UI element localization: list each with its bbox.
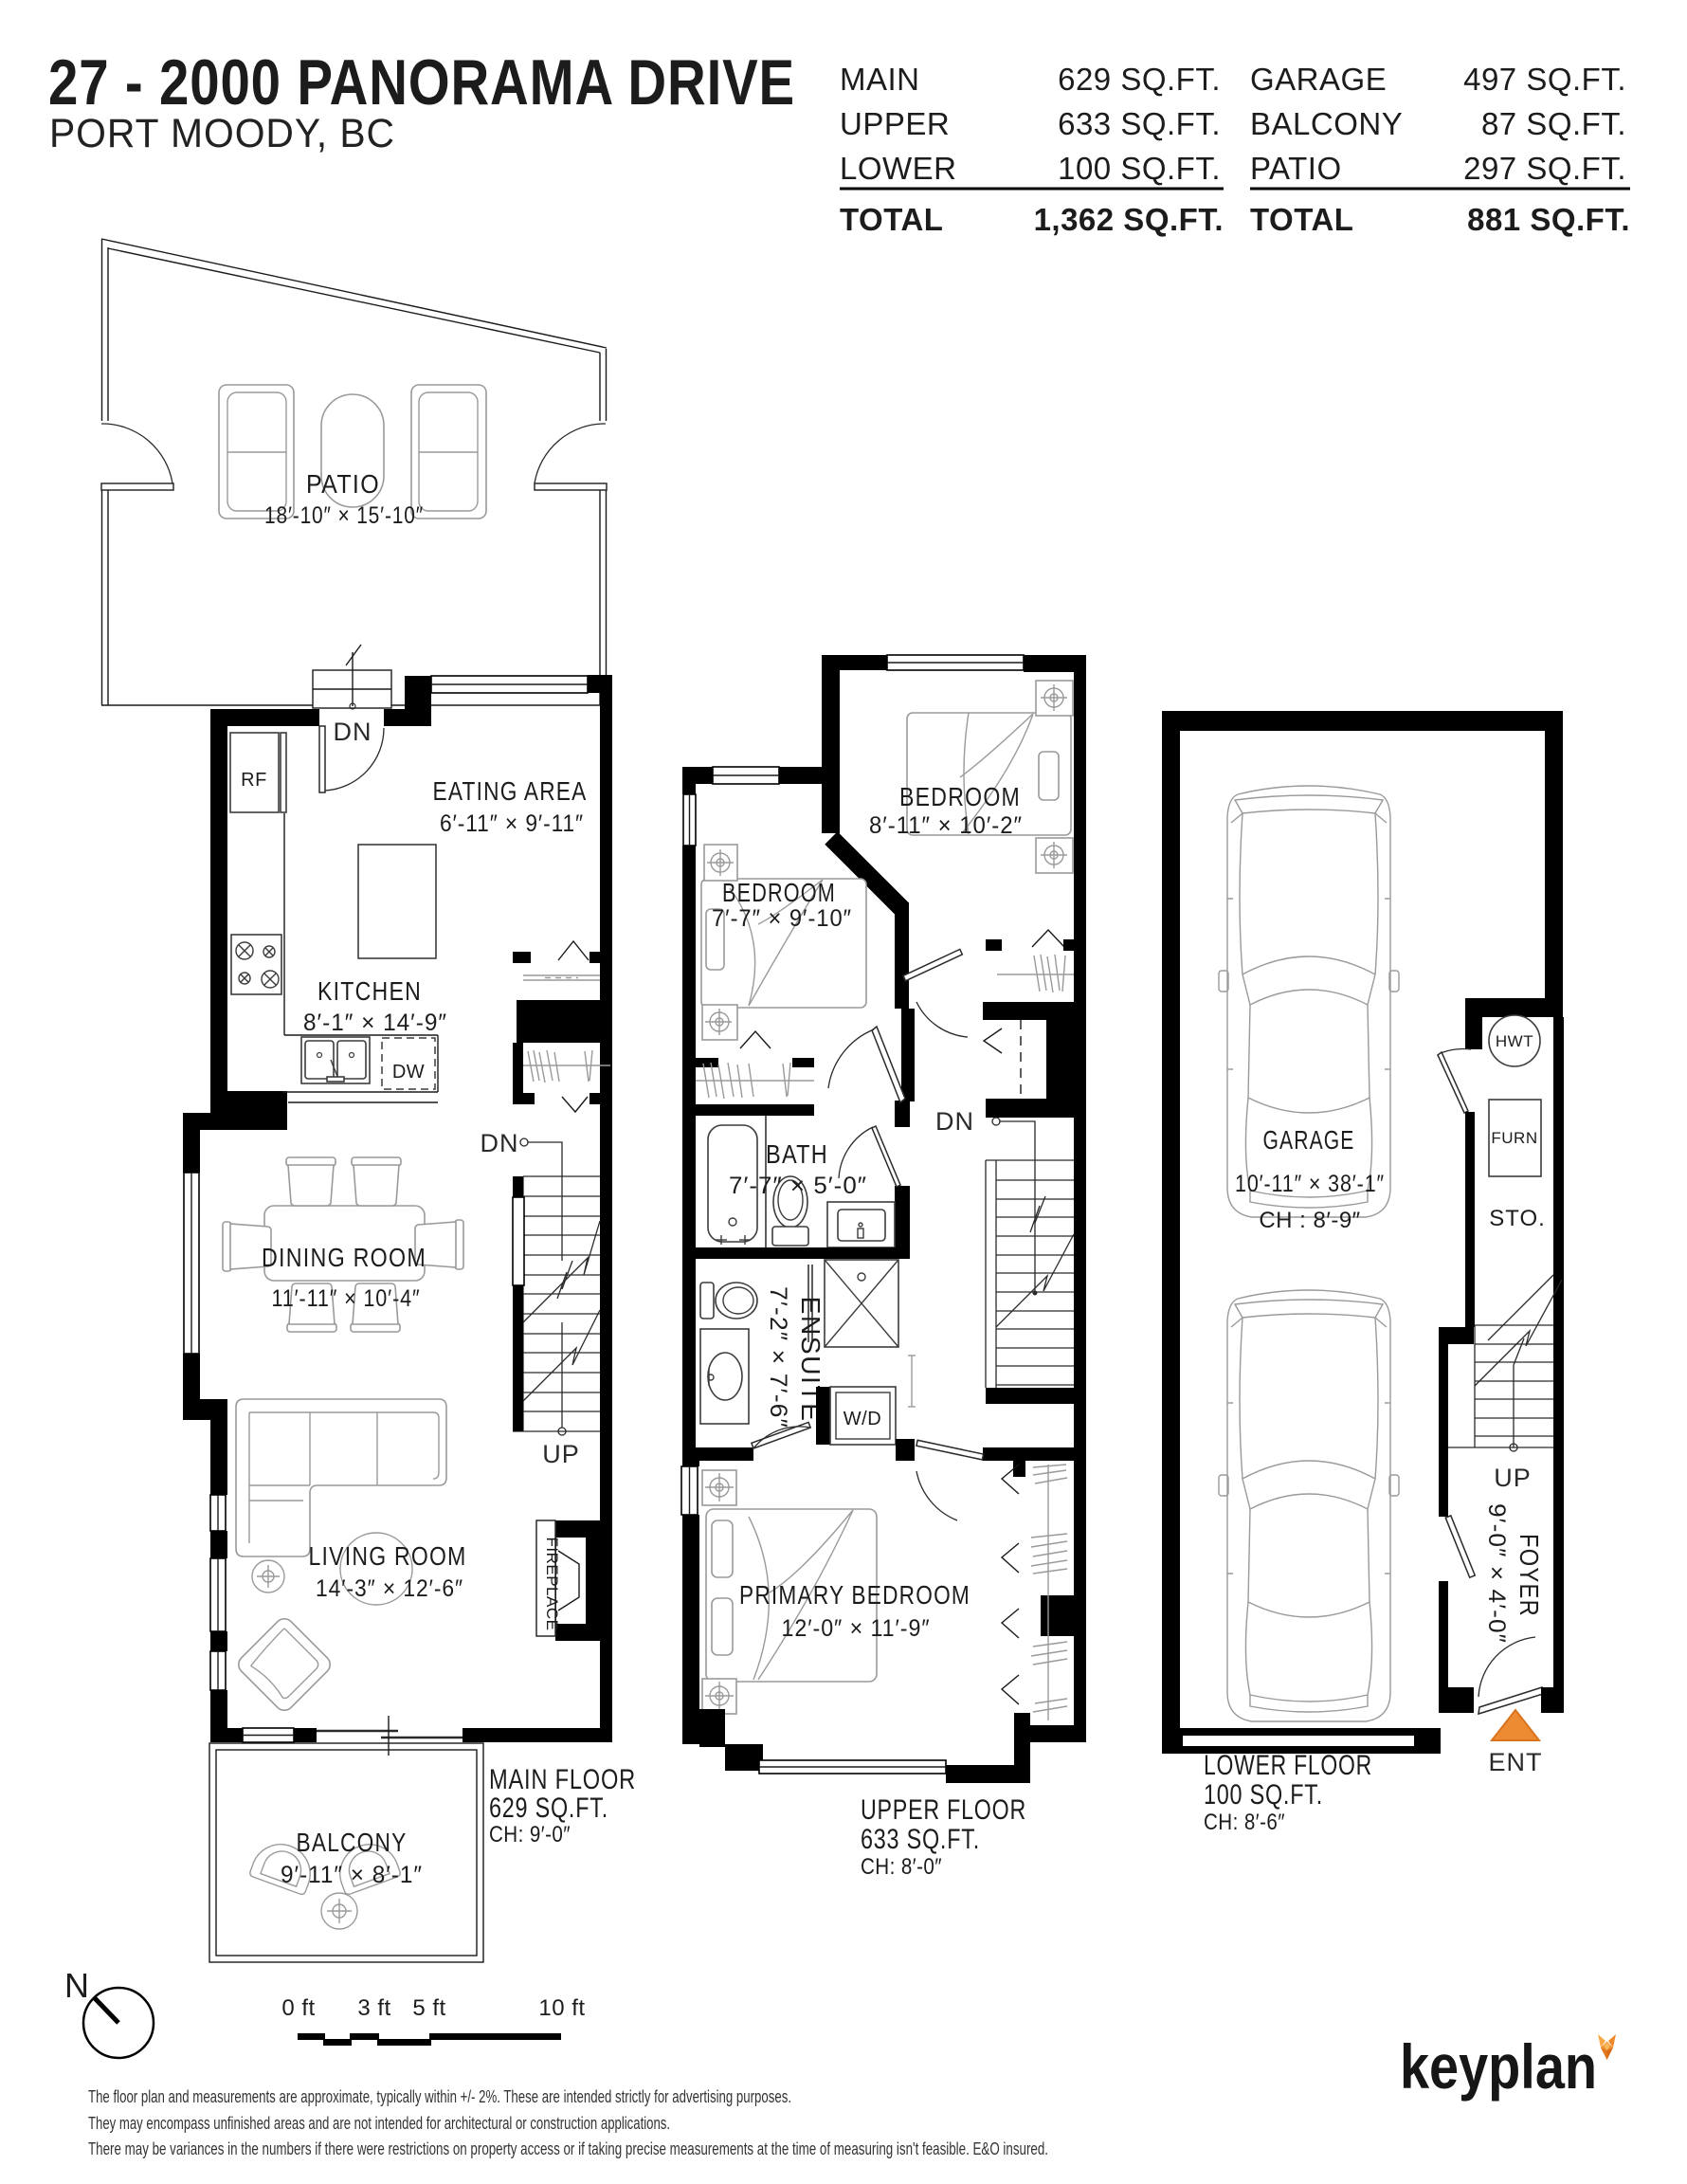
svg-text:DN: DN — [935, 1107, 974, 1136]
svg-text:633 SQ.FT.: 633 SQ.FT. — [1058, 106, 1221, 141]
svg-text:CH : 8′-9″: CH : 8′-9″ — [1259, 1208, 1360, 1233]
svg-text:DW: DW — [392, 1062, 425, 1083]
svg-text:497 SQ.FT.: 497 SQ.FT. — [1463, 62, 1626, 97]
svg-text:MAIN: MAIN — [840, 62, 920, 97]
svg-text:10 ft: 10 ft — [538, 1995, 585, 2021]
svg-text:N: N — [64, 1966, 89, 2005]
svg-text:CH: 8′-6″: CH: 8′-6″ — [1204, 1810, 1285, 1835]
svg-text:ENT: ENT — [1489, 1748, 1543, 1776]
svg-text:BEDROOM: BEDROOM — [722, 878, 836, 907]
svg-text:STO.: STO. — [1489, 1206, 1546, 1231]
svg-text:100 SQ.FT.: 100 SQ.FT. — [1204, 1779, 1323, 1811]
svg-text:LIVING ROOM: LIVING ROOM — [309, 1541, 467, 1571]
svg-text:881 SQ.FT.: 881 SQ.FT. — [1467, 202, 1630, 237]
svg-text:KITCHEN: KITCHEN — [317, 976, 422, 1006]
svg-text:633 SQ.FT.: 633 SQ.FT. — [861, 1824, 980, 1855]
svg-text:PATIO: PATIO — [1250, 151, 1342, 186]
svg-text:BALCONY: BALCONY — [1250, 106, 1403, 141]
svg-text:7′-2″ × 7′-6″: 7′-2″ × 7′-6″ — [765, 1286, 791, 1429]
svg-text:BATH: BATH — [766, 1139, 828, 1169]
svg-text:629 SQ.FT.: 629 SQ.FT. — [1058, 62, 1221, 97]
svg-text:5 ft: 5 ft — [412, 1995, 445, 2021]
svg-text:14′-3″ × 12′-6″: 14′-3″ × 12′-6″ — [316, 1575, 463, 1602]
svg-text:PRIMARY BEDROOM: PRIMARY BEDROOM — [739, 1580, 970, 1610]
svg-text:BEDROOM: BEDROOM — [899, 782, 1021, 811]
svg-text:UP: UP — [542, 1440, 580, 1468]
svg-text:0 ft: 0 ft — [281, 1995, 315, 2021]
svg-text:1,362 SQ.FT.: 1,362 SQ.FT. — [1034, 202, 1224, 237]
svg-text:GARAGE: GARAGE — [1250, 62, 1387, 97]
svg-text:RF: RF — [241, 770, 267, 791]
svg-text:CH: 9′-0″: CH: 9′-0″ — [489, 1822, 571, 1847]
svg-text:FIREPLACE: FIREPLACE — [543, 1538, 561, 1631]
svg-text:18′-10″ × 15′-10″: 18′-10″ × 15′-10″ — [264, 502, 424, 529]
svg-text:27 - 2000 PANORAMA DRIVE: 27 - 2000 PANORAMA DRIVE — [48, 46, 795, 118]
svg-text:7′-7″ × 9′-10″: 7′-7″ × 9′-10″ — [712, 905, 852, 932]
svg-text:FURN: FURN — [1491, 1129, 1537, 1147]
svg-text:DINING ROOM: DINING ROOM — [262, 1243, 426, 1272]
svg-text:GARAGE: GARAGE — [1263, 1125, 1355, 1155]
svg-text:8′-11″ × 10′-2″: 8′-11″ × 10′-2″ — [869, 812, 1023, 839]
svg-text:TOTAL: TOTAL — [840, 202, 943, 237]
svg-text:7′-7″ × 5′-0″: 7′-7″ × 5′-0″ — [729, 1173, 867, 1199]
svg-text:There may be variances in the: There may be variances in the numbers if… — [88, 2138, 1048, 2158]
svg-text:6′-11″ × 9′-11″: 6′-11″ × 9′-11″ — [440, 810, 584, 837]
svg-text:DN: DN — [334, 718, 372, 746]
svg-text:They may encompass unfinished: They may encompass unfinished areas and … — [88, 2113, 670, 2133]
svg-text:3 ft: 3 ft — [357, 1995, 390, 2021]
svg-text:W/D: W/D — [843, 1409, 881, 1429]
svg-text:9′-11″ × 8′-1″: 9′-11″ × 8′-1″ — [281, 1862, 423, 1888]
svg-text:UPPER: UPPER — [840, 106, 950, 141]
svg-text:The floor plan and measurement: The floor plan and measurements are appr… — [88, 2086, 791, 2106]
svg-text:LOWER FLOOR: LOWER FLOOR — [1204, 1750, 1372, 1781]
svg-text:12′-0″ × 11′-9″: 12′-0″ × 11′-9″ — [782, 1615, 931, 1642]
svg-text:MAIN FLOOR: MAIN FLOOR — [489, 1764, 636, 1795]
svg-text:CH: 8′-0″: CH: 8′-0″ — [861, 1854, 942, 1880]
svg-text:DN: DN — [481, 1129, 519, 1157]
svg-text:10′-11″ × 38′-1″: 10′-11″ × 38′-1″ — [1235, 1171, 1385, 1197]
svg-text:TOTAL: TOTAL — [1250, 202, 1353, 237]
svg-text:EATING AREA: EATING AREA — [433, 776, 588, 806]
svg-text:LOWER: LOWER — [840, 151, 957, 186]
svg-text:FOYER: FOYER — [1515, 1534, 1544, 1617]
svg-text:87 SQ.FT.: 87 SQ.FT. — [1481, 106, 1626, 141]
svg-text:HWT: HWT — [1496, 1032, 1533, 1050]
svg-text:PORT MOODY, BC: PORT MOODY, BC — [49, 111, 395, 156]
svg-text:629 SQ.FT.: 629 SQ.FT. — [489, 1793, 608, 1824]
svg-text:100 SQ.FT.: 100 SQ.FT. — [1058, 151, 1221, 186]
svg-text:UPPER FLOOR: UPPER FLOOR — [861, 1794, 1026, 1826]
svg-text:UP: UP — [1494, 1464, 1532, 1492]
svg-text:BALCONY: BALCONY — [297, 1828, 408, 1857]
svg-text:297 SQ.FT.: 297 SQ.FT. — [1463, 151, 1626, 186]
svg-text:keyplan: keyplan — [1400, 2031, 1597, 2102]
svg-text:8′-1″ × 14′-9″: 8′-1″ × 14′-9″ — [303, 1010, 447, 1036]
svg-text:9′-0″ × 4′-0″: 9′-0″ × 4′-0″ — [1483, 1503, 1510, 1644]
svg-text:PATIO: PATIO — [306, 469, 380, 499]
svg-text:11′-11″ × 10′-4″: 11′-11″ × 10′-4″ — [272, 1285, 421, 1312]
